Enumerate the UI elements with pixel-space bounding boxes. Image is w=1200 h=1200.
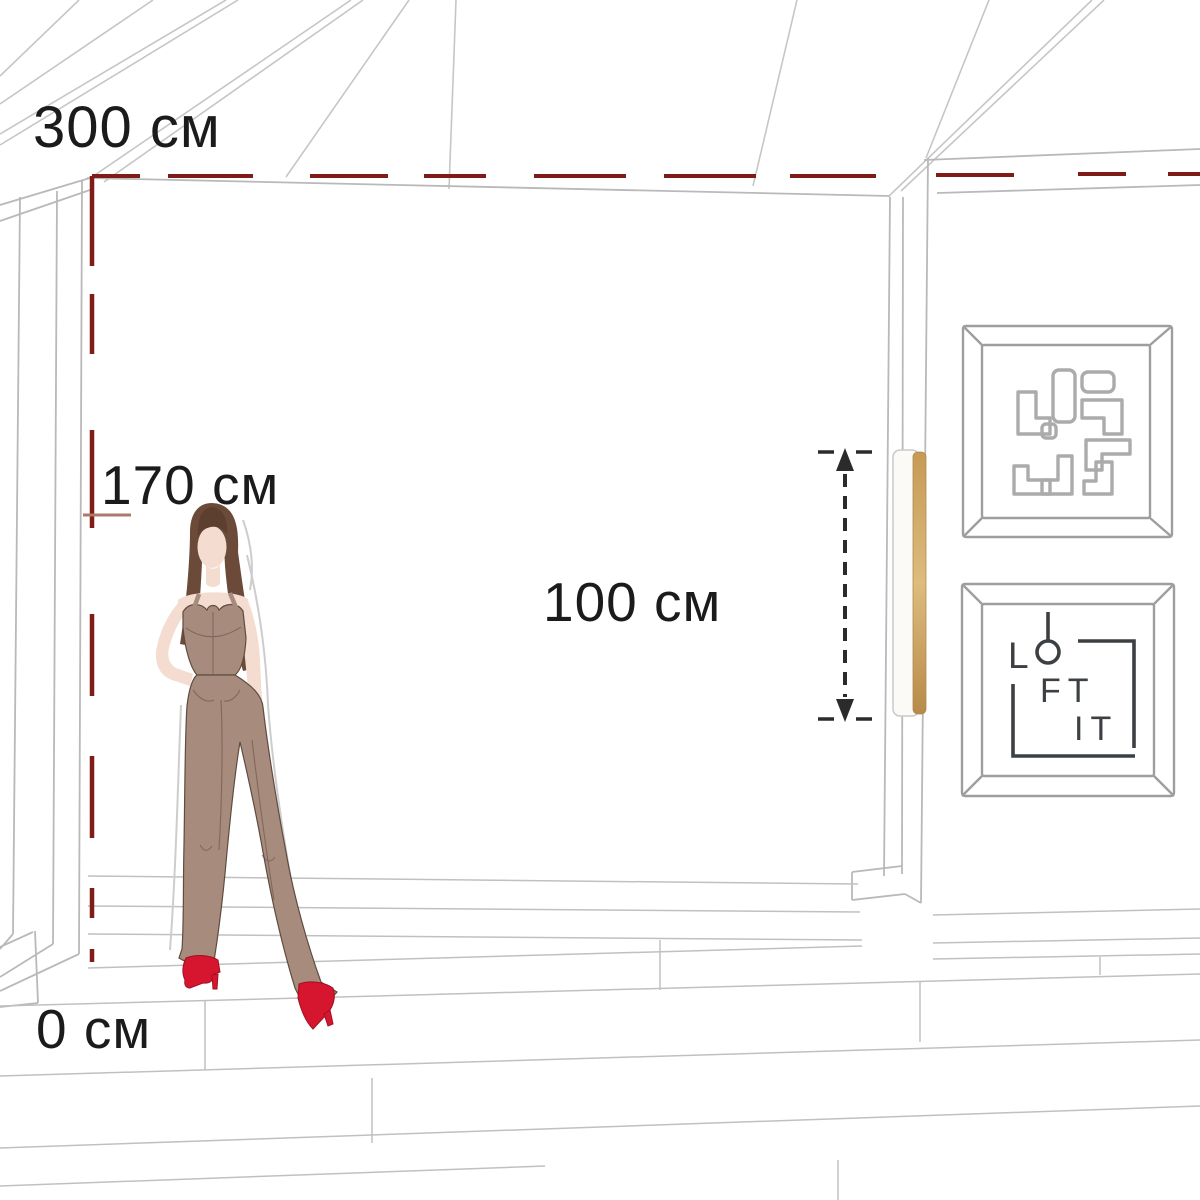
floor-lines (0, 876, 1200, 1200)
lamp-measure-arrow (818, 448, 872, 722)
ceiling-reference-dashes (92, 174, 1200, 176)
interior-lamp-mounting-diagram: L FT IT (0, 0, 1200, 1200)
fashion-figure (156, 503, 337, 1029)
wall-lamp (893, 450, 926, 716)
ceiling-height-label: 300 см (33, 94, 221, 161)
arrowhead-up-icon (836, 448, 854, 471)
mounting-height-label: 170 см (101, 453, 279, 517)
figure-pants (179, 675, 337, 999)
floor-level-label: 0 см (36, 997, 151, 1061)
logo-letters-ft: FT (1040, 672, 1096, 710)
maze-artwork-frame (963, 326, 1172, 537)
arrowhead-down-icon (836, 699, 854, 722)
logo-letters-it: IT (1074, 710, 1118, 748)
figure-face (198, 526, 227, 568)
lamp-length-label: 100 см (543, 570, 721, 634)
loft-it-logo-frame: L FT IT (962, 584, 1174, 796)
figure-bustier (183, 604, 246, 675)
lamp-gold-edge (913, 452, 926, 714)
logo-letter-l: L (1008, 635, 1029, 676)
reference-lines (92, 174, 1200, 962)
pendant-bulb-icon (1037, 641, 1059, 663)
maze-pattern (1014, 370, 1130, 494)
